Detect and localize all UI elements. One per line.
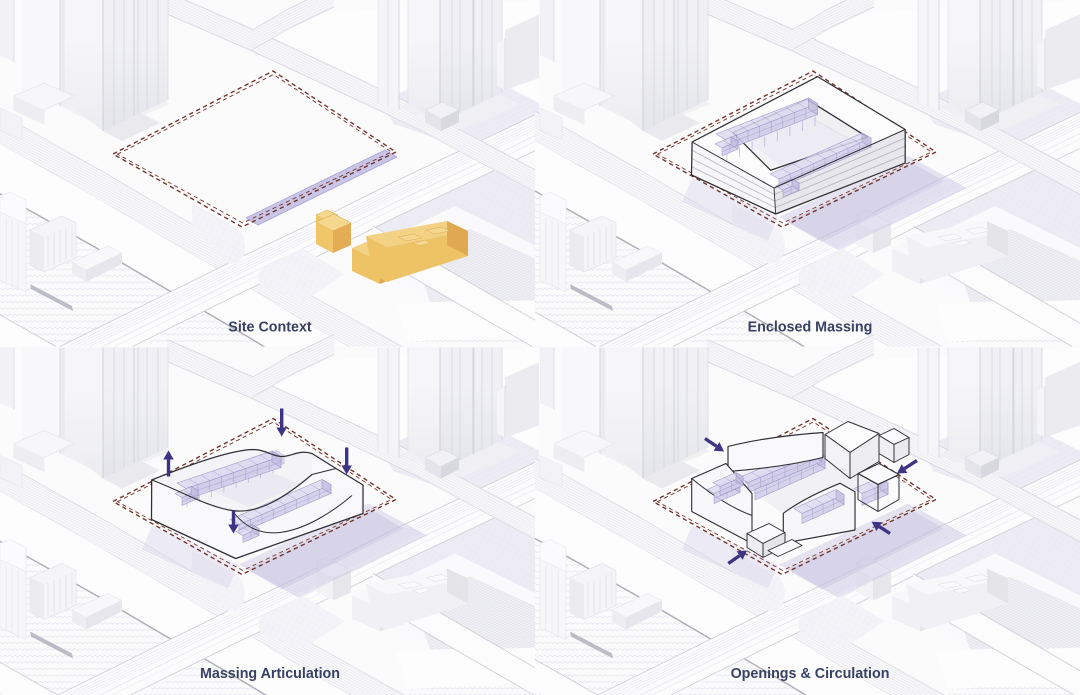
svg-text:Site Context: Site Context (228, 320, 312, 336)
svg-text:Enclosed Massing: Enclosed Massing (748, 320, 873, 336)
svg-text:Openings & Circulation: Openings & Circulation (731, 666, 890, 682)
svg-text:Massing Articulation: Massing Articulation (200, 666, 340, 682)
